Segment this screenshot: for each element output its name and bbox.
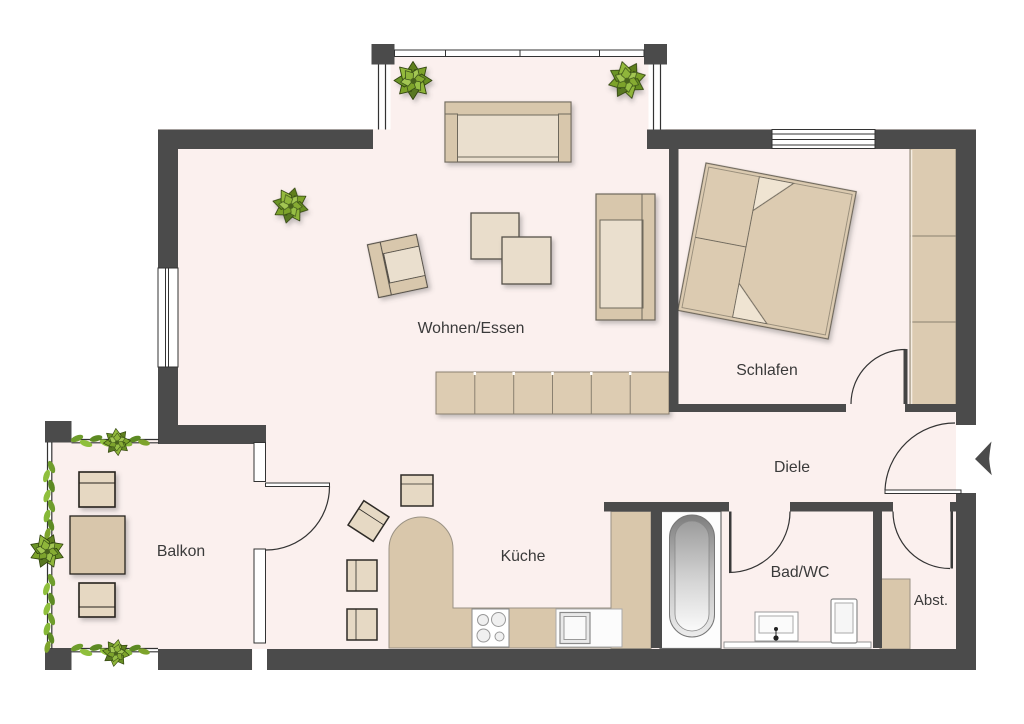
svg-text:Küche: Küche bbox=[501, 548, 546, 565]
svg-text:Diele: Diele bbox=[774, 459, 810, 476]
svg-text:Balkon: Balkon bbox=[157, 543, 205, 560]
svg-text:Wohnen/Essen: Wohnen/Essen bbox=[418, 320, 525, 337]
svg-text:Schlafen: Schlafen bbox=[736, 362, 797, 379]
svg-text:Bad/WC: Bad/WC bbox=[771, 564, 830, 581]
svg-text:Abst.: Abst. bbox=[914, 592, 948, 609]
